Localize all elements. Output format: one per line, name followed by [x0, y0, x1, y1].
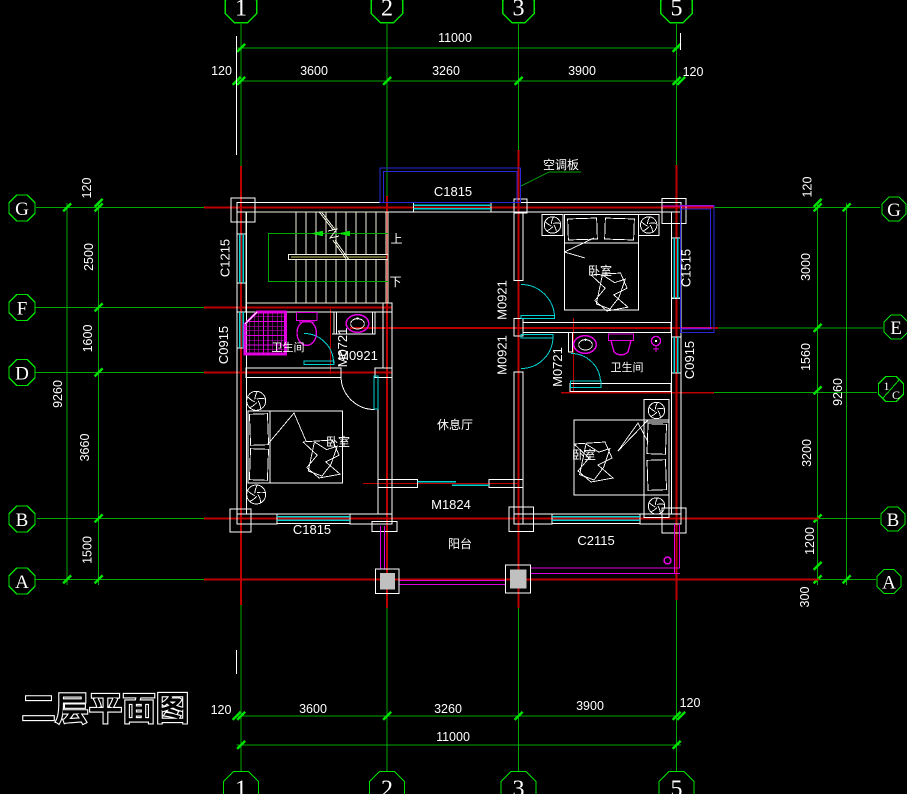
svg-text:3: 3 [513, 0, 525, 22]
svg-text:5: 5 [671, 777, 683, 794]
svg-text:3900: 3900 [568, 64, 596, 78]
svg-text:3600: 3600 [300, 64, 328, 78]
svg-text:C1515: C1515 [679, 249, 694, 287]
svg-text:G: G [15, 199, 29, 220]
svg-text:休息厅: 休息厅 [437, 417, 473, 432]
svg-text:C2115: C2115 [577, 533, 614, 548]
svg-text:9260: 9260 [51, 380, 65, 408]
svg-text:C0915: C0915 [682, 341, 697, 379]
svg-text:1: 1 [235, 0, 247, 22]
svg-text:3600: 3600 [299, 702, 327, 716]
svg-text:2: 2 [381, 0, 393, 22]
svg-text:1560: 1560 [799, 343, 813, 371]
svg-text:F: F [17, 298, 28, 319]
svg-text:3260: 3260 [434, 702, 462, 716]
svg-text:120: 120 [211, 703, 232, 717]
svg-text:G: G [887, 200, 901, 221]
svg-text:M1824: M1824 [431, 497, 471, 512]
svg-text:D: D [15, 363, 29, 384]
svg-text:B: B [887, 510, 900, 531]
svg-text:1: 1 [235, 777, 247, 794]
svg-text:二层平面图: 二层平面图 [22, 690, 190, 727]
svg-text:卫生间: 卫生间 [272, 340, 305, 354]
svg-text:1500: 1500 [81, 536, 95, 564]
svg-text:M0721: M0721 [550, 347, 565, 387]
svg-text:M0921: M0921 [495, 335, 510, 375]
svg-text:3200: 3200 [800, 439, 814, 467]
svg-text:2500: 2500 [82, 243, 96, 271]
svg-text:120: 120 [683, 65, 704, 79]
svg-text:3660: 3660 [78, 434, 92, 462]
svg-text:上: 上 [390, 232, 402, 246]
svg-text:3: 3 [513, 777, 525, 794]
svg-text:3260: 3260 [432, 64, 460, 78]
svg-text:3000: 3000 [799, 253, 813, 281]
svg-text:120: 120 [211, 64, 232, 78]
svg-text:300: 300 [798, 587, 812, 608]
svg-text:1: 1 [884, 379, 890, 393]
svg-text:11000: 11000 [438, 31, 472, 45]
svg-text:C: C [892, 388, 900, 402]
svg-text:C1815: C1815 [293, 522, 331, 537]
svg-text:M0721: M0721 [335, 328, 350, 368]
svg-text:120: 120 [680, 696, 701, 710]
svg-text:A: A [882, 572, 896, 593]
svg-text:5: 5 [671, 0, 683, 22]
svg-text:120: 120 [801, 177, 815, 198]
svg-text:3900: 3900 [576, 699, 604, 713]
svg-text:1600: 1600 [81, 325, 95, 353]
svg-text:下: 下 [389, 275, 401, 289]
svg-text:卫生间: 卫生间 [611, 360, 644, 374]
svg-text:卧室: 卧室 [588, 263, 612, 278]
svg-text:A: A [15, 572, 29, 593]
svg-text:120: 120 [80, 178, 94, 199]
svg-text:E: E [890, 318, 902, 339]
svg-text:空调板: 空调板 [543, 158, 579, 172]
svg-text:B: B [16, 510, 29, 531]
svg-text:阳台: 阳台 [448, 536, 472, 551]
svg-text:M0921: M0921 [495, 280, 510, 320]
svg-text:卧室: 卧室 [572, 447, 596, 462]
svg-text:C0915: C0915 [216, 326, 231, 364]
svg-text:11000: 11000 [436, 730, 470, 744]
svg-text:1200: 1200 [803, 527, 817, 555]
svg-text:2: 2 [381, 777, 393, 794]
svg-text:C1815: C1815 [434, 184, 472, 199]
svg-text:卧室: 卧室 [326, 434, 350, 449]
svg-text:9260: 9260 [831, 378, 845, 406]
svg-text:C1215: C1215 [218, 239, 233, 277]
